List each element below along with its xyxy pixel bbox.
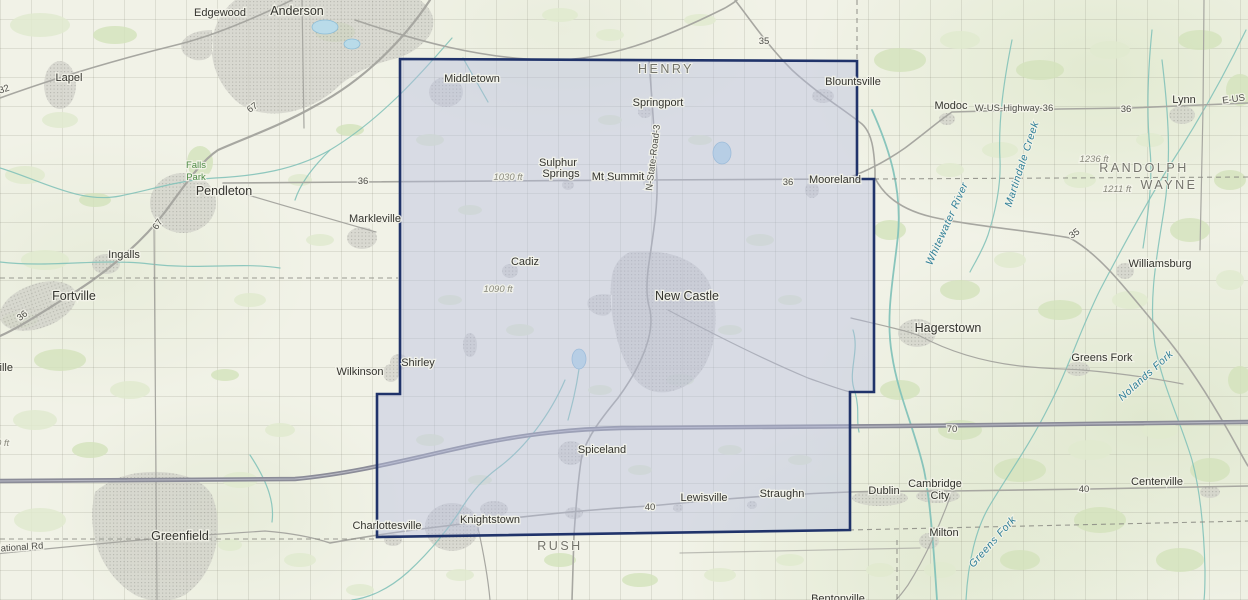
town-label-lapel: Lapel [56, 72, 83, 84]
town-label-shirley: Shirley [401, 357, 435, 369]
map-root: HENRYRUSHRANDOLPHWAYNEEdgewoodAndersonLa… [0, 0, 1248, 600]
urban-area-markleville [347, 227, 377, 249]
road-label-national-rd: National Rd [0, 541, 44, 555]
town-label-mooreland: Mooreland [809, 174, 861, 186]
town-label-spiceland: Spiceland [578, 444, 626, 456]
road-label-35: 35 [759, 36, 770, 47]
road-label-w-us-highway-36: W-US-Highway-36 [975, 103, 1053, 114]
town-label-springport: Springport [633, 97, 684, 109]
road-label-70: 70 [947, 424, 958, 435]
map-canvas[interactable]: HENRYRUSHRANDOLPHWAYNEEdgewoodAndersonLa… [0, 0, 1248, 600]
town-label-wilkinson: Wilkinson [336, 366, 383, 378]
road-knightstown-south [478, 528, 490, 600]
town-label-williamsburg: Williamsburg [1129, 258, 1192, 270]
town-label-greenfield: Greenfield [151, 529, 209, 543]
elevation-label-1236-ft: 1236 ft [1079, 154, 1108, 165]
countie-label-henry: HENRY [638, 62, 694, 76]
elevation-label-0-ft: 0 ft [0, 438, 10, 449]
town-label-ville: ville [0, 362, 13, 374]
water-label-whitewater-river: Whitewater River [924, 180, 971, 267]
henry-county-highlight[interactable] [377, 59, 874, 537]
water-label-martindale-creek: Martindale Creek [1003, 119, 1042, 208]
road-label-40: 40 [645, 502, 656, 513]
countie-label-rush: RUSH [537, 539, 582, 553]
road-label-40: 40 [1079, 484, 1090, 495]
town-label-bentonville: Bentonville [811, 593, 865, 600]
park-label-falls: Falls [186, 160, 206, 171]
town-label-cadiz: Cadiz [511, 256, 539, 268]
road-label-36: 36 [358, 176, 369, 187]
lake-anderson-2 [344, 39, 360, 49]
town-label-modoc: Modoc [934, 100, 968, 112]
town-label-ingalls: Ingalls [108, 249, 140, 261]
town-label-blountsville: Blountsville [825, 76, 881, 88]
park-label-park: Park [186, 172, 206, 183]
countie-label-wayne: WAYNE [1141, 178, 1198, 192]
town-label-knightstown: Knightstown [460, 514, 520, 526]
elevation-label-1211-ft: 1211 ft [1103, 184, 1132, 195]
town-label-milton: Milton [929, 527, 958, 539]
town-label-mt-summit: Mt Summit [592, 171, 645, 183]
creek-greenfield [250, 455, 273, 522]
town-label-middletown: Middletown [444, 73, 500, 85]
road-label-36: 36 [1121, 104, 1132, 115]
town-label-cambridge: Cambridge [908, 478, 962, 490]
town-label-city: City [931, 490, 950, 502]
town-label-dublin: Dublin [868, 485, 899, 497]
elevation-label-1090-ft: 1090 ft [483, 284, 512, 295]
county-line-south [849, 521, 1248, 530]
town-label-pendleton: Pendleton [196, 184, 252, 198]
river-whitewater [872, 110, 937, 600]
road-label-35: 35 [1067, 226, 1082, 241]
road-old40 [680, 548, 920, 553]
town-label-markleville: Markleville [349, 213, 401, 225]
urban-area-wilkinson [383, 364, 399, 382]
town-label-lynn: Lynn [1172, 94, 1195, 106]
town-label-edgewood: Edgewood [194, 7, 246, 19]
town-label-straughn: Straughn [760, 488, 805, 500]
town-label-springs: Springs [542, 168, 580, 180]
urban-area-lynn [1169, 106, 1195, 124]
town-label-charlottesville: Charlottesville [352, 520, 421, 532]
elevation-label-1030-ft: 1030 ft [493, 172, 522, 183]
road-label-36: 36 [783, 177, 794, 188]
lake-anderson-1 [312, 20, 338, 34]
town-label-greens-fork: Greens Fork [1071, 352, 1133, 364]
town-label-hagerstown: Hagerstown [915, 321, 982, 335]
town-label-new-castle: New Castle [655, 289, 719, 303]
countie-label-randolph: RANDOLPH [1099, 161, 1188, 175]
urban-area-lapel [44, 61, 76, 109]
town-label-anderson: Anderson [270, 4, 324, 18]
town-label-lewisville: Lewisville [680, 492, 727, 504]
town-label-fortville: Fortville [52, 289, 96, 303]
urban-area-centerville [1200, 486, 1220, 498]
town-label-centerville: Centerville [1131, 476, 1183, 488]
